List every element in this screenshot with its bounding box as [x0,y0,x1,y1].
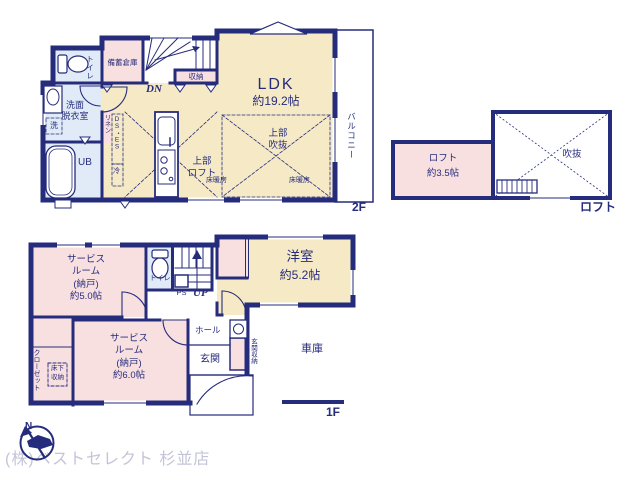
ladder-icon [497,180,537,193]
label-balcony: バルコニー [347,112,356,160]
label-yoshitsu: 洋室 [270,249,330,266]
label-linen: リネン [103,114,110,134]
label-closet-1f: クローゼット [33,349,40,391]
label-floor-heating-2: 床暖房 [289,177,310,186]
label-garage: 車庫 [301,343,323,357]
kitchen-counter-icon [155,112,178,197]
label-underfloor-storage: 床下収納 [48,365,67,383]
label-loft-plan: ロフト [580,200,616,215]
entrance-storage-box [230,338,247,370]
label-floor-heating-1: 床暖房 [206,177,227,186]
label-loft-void: 吹抜 [552,149,592,161]
label-fridge: 冷 [113,168,120,177]
floorplan-canvas: トイレ 備蓄倉庫 収納 DN LDK 約19.2帖 洗面脱衣室 洗 リネン DS… [0,0,640,480]
label-washroom: 洗面脱衣室 [49,100,101,123]
label-1f: 1F [326,405,340,420]
label-ps: PS [175,288,188,297]
label-2f: 2F [352,200,366,215]
label-dn: DN [146,83,162,97]
label-emergency-storage: 備蓄倉庫 [102,58,143,67]
garage-ground-line [282,400,344,404]
label-yoshitsu-size: 約5.2帖 [264,268,336,283]
label-loft-size: 約3.5帖 [413,168,473,180]
floorplan-drawing [0,0,640,480]
label-entrance-storage: 玄関収納 [249,338,256,364]
compass-icon: N [12,418,60,466]
label-closet-2f: 収納 [176,72,216,81]
north-label: N [25,421,32,432]
washbasin-icon-1f [230,320,247,338]
label-toilet-1f: トイレ [148,275,172,284]
ps-box [175,275,188,287]
label-entrance: 玄関 [200,354,220,367]
toilet-icon-1f [152,250,168,278]
label-loft-room: ロフト [413,153,473,165]
label-ldk-size: 約19.2帖 [240,94,312,109]
label-up: UP [193,287,208,301]
toilet-icon-2f [58,55,88,73]
bay-window [250,22,307,34]
label-ldk: LDK [240,75,312,95]
label-washer: 洗 [46,121,62,131]
label-service-room-2: サービスルーム(納戸)約6.0帖 [99,333,159,382]
label-service-room-1: サービスルーム(納戸)約5.0帖 [56,254,116,303]
label-toilet-2f: トイレ [86,55,94,81]
label-upper-void: 上部吹抜 [256,128,300,152]
entrance-porch [190,375,253,415]
label-hall: ホール [195,325,221,336]
label-duct-space: DS・ES [113,116,120,151]
label-ub: UB [70,157,100,170]
